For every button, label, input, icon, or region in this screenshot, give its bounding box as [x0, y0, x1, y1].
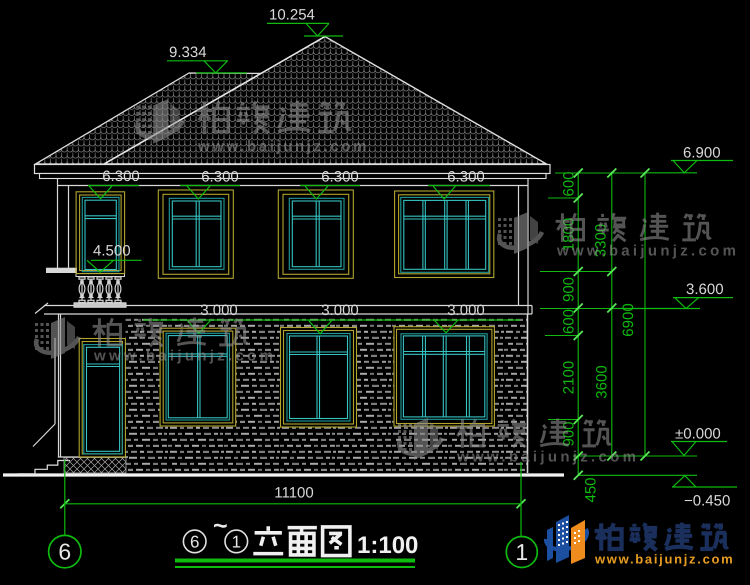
svg-text:6.300: 6.300 [102, 168, 140, 185]
svg-text:3.000: 3.000 [200, 302, 238, 319]
svg-text:600: 600 [561, 309, 578, 334]
svg-text:6.300: 6.300 [321, 168, 359, 185]
svg-text:6.300: 6.300 [201, 168, 239, 185]
svg-text:~: ~ [213, 512, 228, 540]
svg-text:6.900: 6.900 [683, 144, 721, 161]
svg-text:600: 600 [561, 171, 578, 196]
svg-text:3.000: 3.000 [447, 302, 485, 319]
svg-text:www.baijunjz.com: www.baijunjz.com [93, 348, 276, 365]
svg-text:900: 900 [561, 277, 578, 302]
svg-text:3.000: 3.000 [321, 302, 359, 319]
svg-text:www.baijunjz.com: www.baijunjz.com [456, 449, 639, 466]
svg-text:6.300: 6.300 [447, 168, 485, 185]
svg-text:9.334: 9.334 [169, 44, 207, 61]
svg-text:1: 1 [515, 539, 528, 565]
svg-text:www.baijunjz.com: www.baijunjz.com [197, 138, 369, 155]
svg-text:1: 1 [232, 533, 241, 552]
svg-text:±0.000: ±0.000 [675, 426, 721, 443]
svg-text:11100: 11100 [274, 485, 314, 502]
svg-text:3.600: 3.600 [686, 281, 724, 298]
svg-text:6: 6 [190, 533, 199, 552]
svg-text:450: 450 [582, 477, 599, 502]
svg-text:3600: 3600 [594, 365, 611, 398]
svg-text:www.baijunjz.com: www.baijunjz.com [594, 552, 734, 567]
svg-text:10.254: 10.254 [269, 7, 315, 24]
svg-text:6: 6 [58, 539, 71, 565]
svg-text:www.baijunjz.com: www.baijunjz.com [556, 243, 739, 260]
svg-text:4.500: 4.500 [93, 242, 131, 259]
svg-text:−0.450: −0.450 [684, 493, 730, 510]
svg-text:2100: 2100 [561, 361, 578, 394]
svg-text:1:100: 1:100 [357, 532, 418, 559]
